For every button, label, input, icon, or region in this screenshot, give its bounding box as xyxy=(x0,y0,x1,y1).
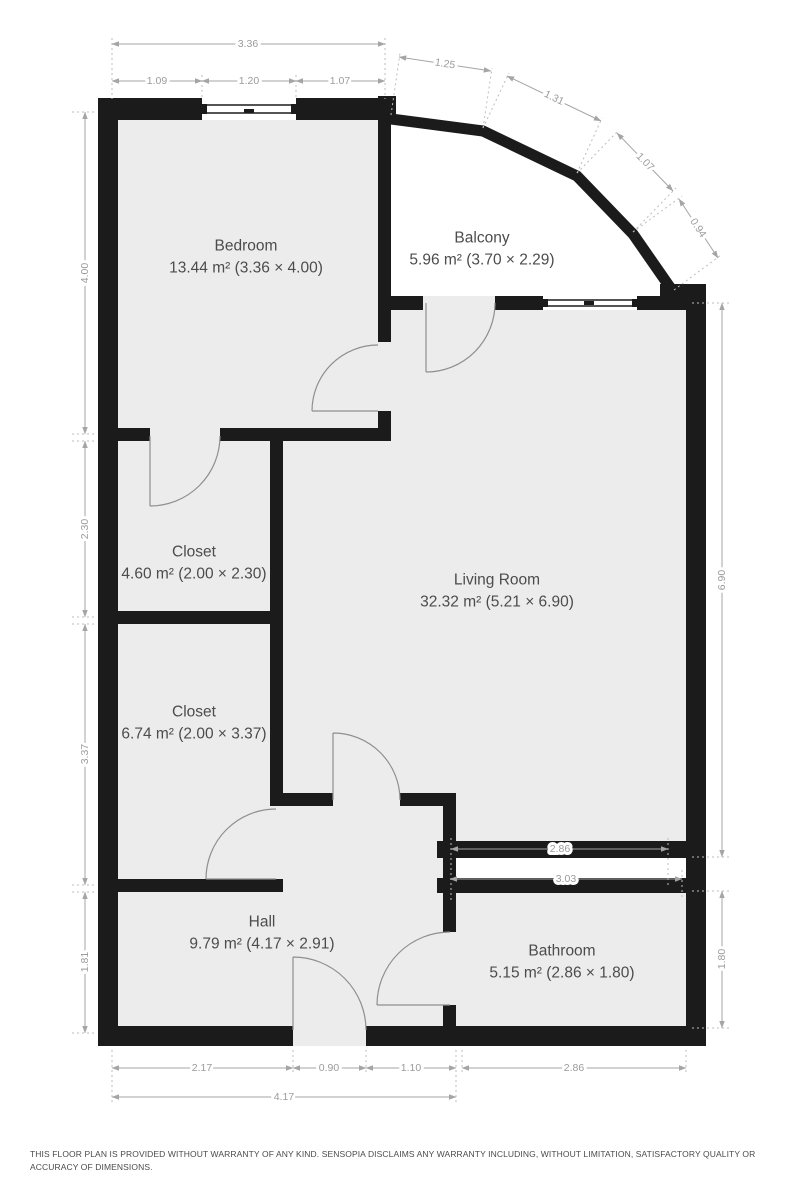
room-name-hall: Hall xyxy=(249,914,276,931)
dim-left-hall: 1.81 xyxy=(79,892,91,1033)
room-bathroom xyxy=(456,893,686,1026)
wall-segment xyxy=(98,98,118,1046)
extension-line xyxy=(577,130,619,173)
room-closet-lower xyxy=(118,624,270,879)
dim-right-living: 6.90 xyxy=(716,303,728,857)
wall-segment xyxy=(118,611,283,624)
wall-segment xyxy=(686,296,706,1046)
dim-top-left: 1.09 xyxy=(112,75,202,87)
bedroom-door-opening xyxy=(378,342,391,411)
bathroom-door-opening xyxy=(443,932,456,1005)
room-area-bedroom: 13.44 m² (3.36 × 4.00) xyxy=(169,260,323,277)
dimension-label: 1.07 xyxy=(330,75,351,87)
dim-balcony-4: 0.94 xyxy=(679,199,718,258)
window-tick xyxy=(202,104,207,114)
dim-bottom-hall-total: 4.17 xyxy=(112,1091,456,1103)
window-tick xyxy=(291,104,296,114)
dim-balcony-1: 1.25 xyxy=(399,57,491,72)
wall-segment xyxy=(98,98,202,120)
dimension-label: 3.36 xyxy=(238,38,259,50)
dimension-label: 2.17 xyxy=(192,1062,213,1074)
dim-left-bedroom: 4.00 xyxy=(79,112,91,434)
extension-line xyxy=(633,196,682,232)
dimension-label: 6.90 xyxy=(716,570,728,591)
room-area-hall: 9.79 m² (4.17 × 2.91) xyxy=(189,936,334,953)
dimension-label: 1.10 xyxy=(401,1062,422,1074)
dim-bottom-hall-left: 2.17 xyxy=(112,1062,293,1074)
dimension-label: 3.03 xyxy=(556,873,577,885)
dimension-label: 0.90 xyxy=(319,1062,340,1074)
wall-segment xyxy=(443,1005,456,1046)
extension-line xyxy=(577,118,602,173)
room-area-bathroom: 5.15 m² (2.86 × 1.80) xyxy=(489,965,634,982)
closet-lower-door-opening xyxy=(270,806,283,879)
floor-plan-svg: 3.36 1.09 1.20 1.07 1.25 1.31 1.07 0.94 xyxy=(0,0,800,1200)
dimension-label: 3.37 xyxy=(79,744,91,765)
dimension-label: 1.09 xyxy=(147,75,168,87)
wall-segment xyxy=(98,1026,293,1046)
floor-plan-page: { "rooms": { "bedroom": {"label": "Bedro… xyxy=(0,0,800,1200)
wall-segment xyxy=(296,98,391,120)
window-tick xyxy=(543,299,548,307)
dimension-label: 4.00 xyxy=(79,263,91,284)
dim-bottom-door: 0.90 xyxy=(293,1062,366,1074)
dim-left-closet-top: 2.30 xyxy=(79,441,91,617)
room-area-living: 32.32 m² (5.21 × 6.90) xyxy=(420,594,574,611)
wall-segment xyxy=(495,296,543,310)
disclaimer-text: THIS FLOOR PLAN IS PROVIDED WITHOUT WARR… xyxy=(30,1148,758,1174)
extension-line xyxy=(633,188,676,232)
room-name-balcony: Balcony xyxy=(454,230,509,247)
dimension-label: 2.86 xyxy=(550,843,571,855)
dimension-label: 2.30 xyxy=(79,519,91,540)
window-tick xyxy=(244,109,254,113)
room-name-bedroom: Bedroom xyxy=(215,238,278,255)
room-area-closet-upper: 4.60 m² (2.00 × 2.30) xyxy=(121,566,266,583)
dimension-label: 1.31 xyxy=(542,88,566,108)
dimension-label: 1.20 xyxy=(239,75,260,87)
dimension-label: 1.81 xyxy=(79,952,91,973)
dim-bottom-hall-right: 1.10 xyxy=(366,1062,456,1074)
dimension-label: 2.86 xyxy=(564,1062,585,1074)
room-closet-upper xyxy=(118,441,270,611)
wall-segment xyxy=(270,793,333,806)
dim-balcony-3: 1.07 xyxy=(617,133,673,191)
wall-segment xyxy=(98,879,283,892)
wall-segment xyxy=(98,428,150,441)
bedroom-window xyxy=(202,98,296,120)
window-tick xyxy=(584,301,594,305)
dim-left-closet-bottom: 3.37 xyxy=(79,624,91,885)
closet-upper-door-opening xyxy=(150,428,220,441)
living-door-opening xyxy=(333,793,400,806)
wall-segment xyxy=(220,428,391,441)
balcony-door-opening xyxy=(423,296,495,310)
room-name-closet-lower: Closet xyxy=(172,704,217,721)
dimension-label: 4.17 xyxy=(274,1091,295,1103)
dimension-label: 1.25 xyxy=(434,57,456,72)
dim-top-total: 3.36 xyxy=(112,38,385,50)
wall-segment xyxy=(443,793,456,932)
room-name-closet-upper: Closet xyxy=(172,544,217,561)
dimension-label: 1.80 xyxy=(716,949,728,970)
room-name-living: Living Room xyxy=(454,572,540,589)
window-tick xyxy=(632,299,637,307)
wall-segment xyxy=(378,98,391,342)
wall-segment xyxy=(366,1026,706,1046)
extension-line xyxy=(483,73,509,128)
entry-door-opening xyxy=(293,1026,366,1046)
wall-segment xyxy=(637,296,686,310)
room-name-bathroom: Bathroom xyxy=(528,943,595,960)
room-area-closet-lower: 6.74 m² (2.00 × 3.37) xyxy=(121,726,266,743)
living-north-window xyxy=(543,296,637,310)
dim-top-right: 1.07 xyxy=(296,75,385,87)
room-area-balcony: 5.96 m² (3.70 × 2.29) xyxy=(409,252,554,269)
dimension-label: 0.94 xyxy=(687,216,708,240)
dim-top-window: 1.20 xyxy=(202,75,296,87)
dim-bottom-bathroom: 2.86 xyxy=(462,1062,686,1074)
dim-balcony-2: 1.31 xyxy=(507,76,601,121)
dim-right-bathroom: 1.80 xyxy=(716,891,728,1028)
